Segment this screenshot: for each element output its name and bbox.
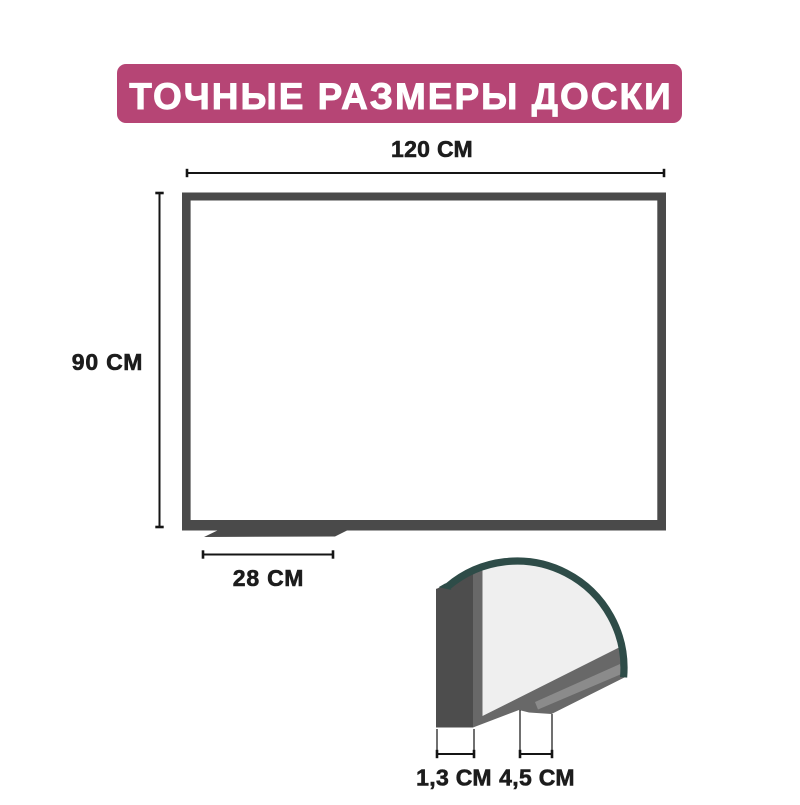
svg-text:ТОЧНЫЕ РАЗМЕРЫ ДОСКИ: ТОЧНЫЕ РАЗМЕРЫ ДОСКИ [129, 76, 672, 117]
svg-text:28 СМ: 28 СМ [233, 565, 304, 591]
svg-text:4,5 СМ: 4,5 СМ [499, 765, 575, 791]
svg-text:1,3 СМ: 1,3 СМ [416, 765, 492, 791]
svg-text:120 СМ: 120 СМ [391, 136, 473, 162]
svg-text:90 СМ: 90 СМ [72, 349, 143, 375]
